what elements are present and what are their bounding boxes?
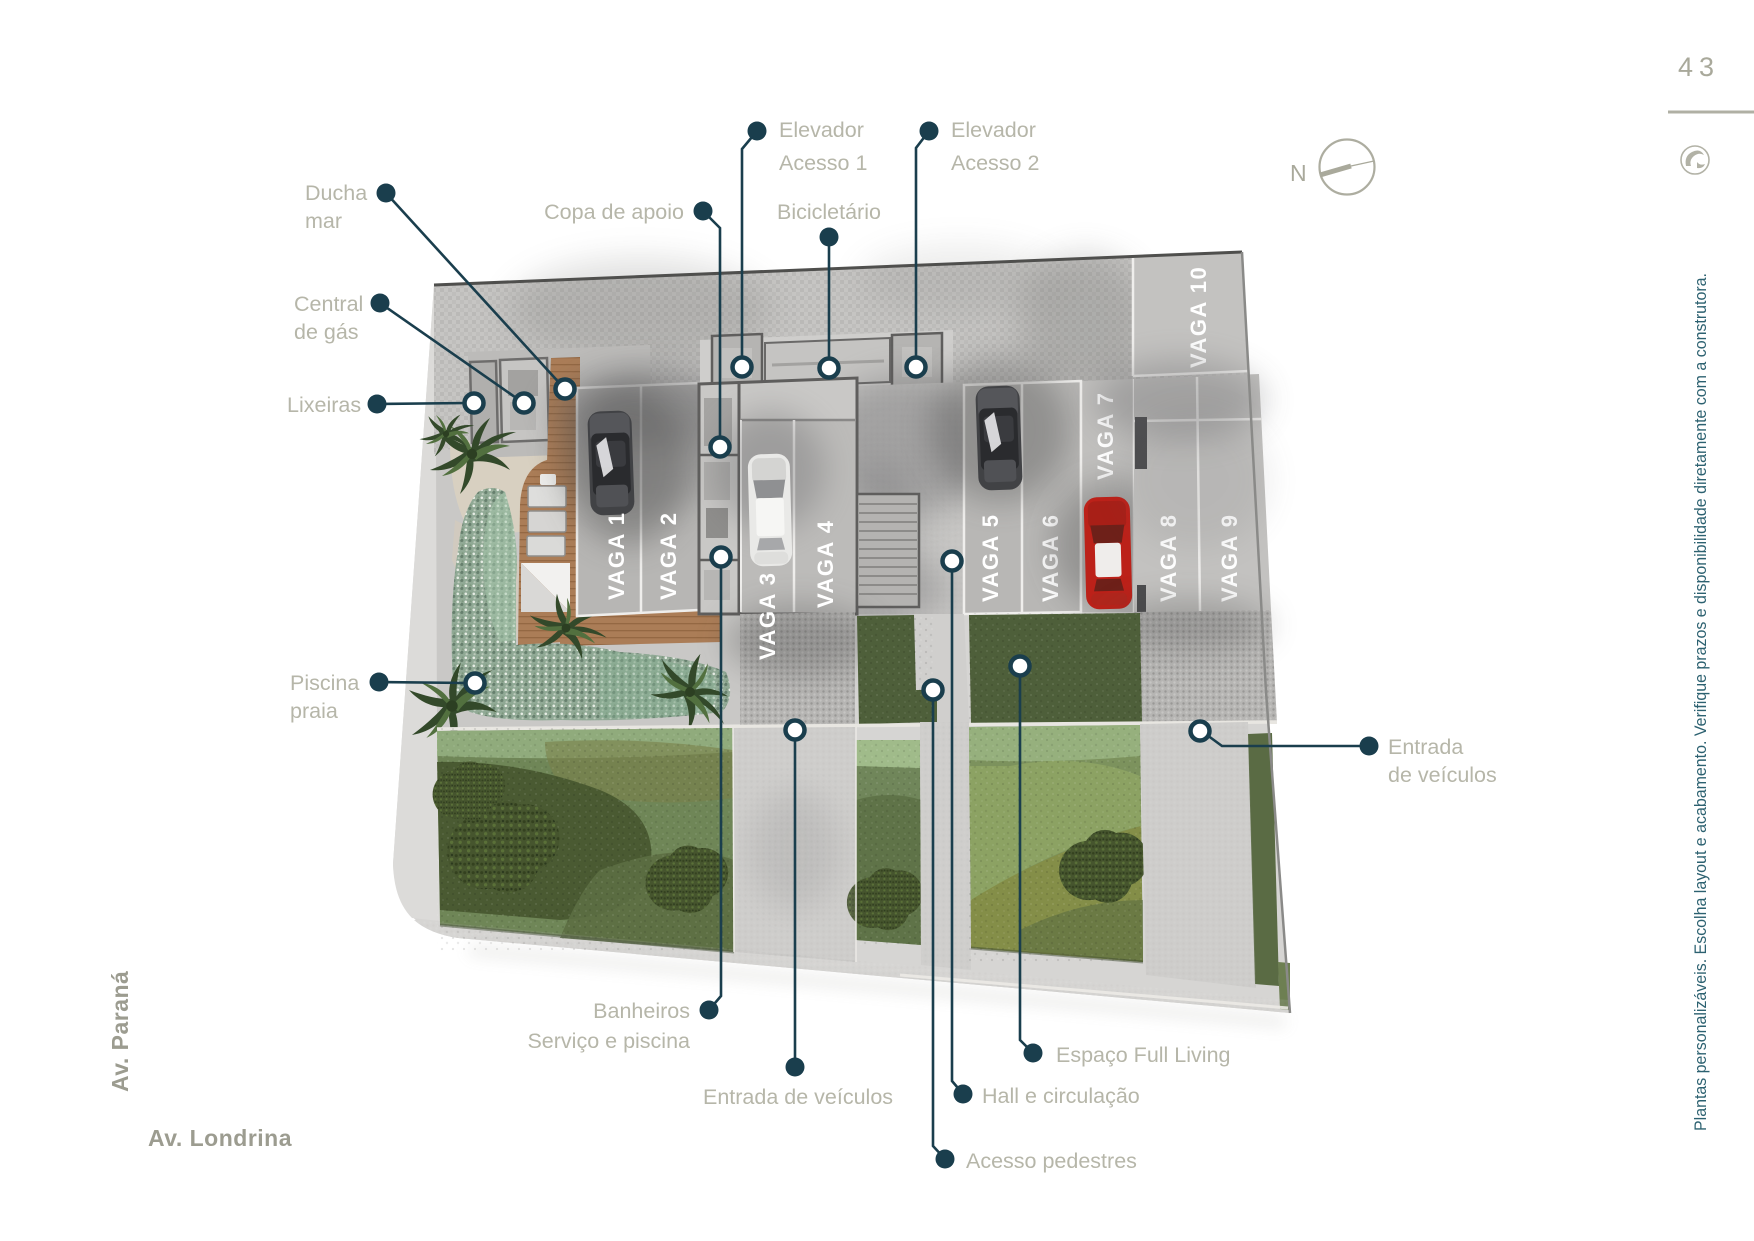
svg-text:Av. Paraná: Av. Paraná: [107, 971, 133, 1092]
svg-text:VAGA 2: VAGA 2: [656, 512, 681, 600]
svg-text:Elevador: Elevador: [951, 118, 1036, 142]
svg-text:Entrada: Entrada: [1388, 735, 1463, 759]
svg-text:Espaço Full Living: Espaço Full Living: [1056, 1043, 1230, 1067]
svg-text:Acesso 2: Acesso 2: [951, 151, 1039, 175]
svg-text:Lixeiras: Lixeiras: [287, 393, 361, 417]
svg-text:43: 43: [1678, 52, 1720, 82]
svg-text:VAGA 4: VAGA 4: [813, 520, 838, 608]
svg-text:VAGA 10: VAGA 10: [1186, 266, 1211, 368]
svg-text:Banheiros: Banheiros: [593, 999, 690, 1023]
svg-text:VAGA 5: VAGA 5: [978, 514, 1003, 602]
svg-text:Elevador: Elevador: [779, 118, 864, 142]
svg-text:Ducha: Ducha: [305, 181, 367, 205]
svg-text:de veículos: de veículos: [1388, 763, 1497, 787]
svg-text:Plantas personalizáveis. Escol: Plantas personalizáveis. Escolha layout …: [1691, 273, 1710, 1131]
svg-text:praia: praia: [290, 699, 338, 723]
svg-text:N: N: [1290, 160, 1307, 186]
svg-text:de gás: de gás: [294, 320, 359, 344]
svg-text:VAGA 3: VAGA 3: [755, 572, 780, 660]
svg-text:Av. Londrina: Av. Londrina: [148, 1125, 292, 1151]
svg-text:mar: mar: [305, 209, 342, 233]
svg-text:Entrada de veículos: Entrada de veículos: [703, 1085, 893, 1109]
svg-text:Acesso pedestres: Acesso pedestres: [966, 1149, 1137, 1173]
svg-text:Copa de apoio: Copa de apoio: [544, 200, 684, 224]
svg-text:Acesso 1: Acesso 1: [779, 151, 867, 175]
svg-text:VAGA 1: VAGA 1: [604, 512, 629, 600]
svg-text:Piscina: Piscina: [290, 671, 359, 695]
svg-text:Bicicletário: Bicicletário: [777, 200, 881, 224]
svg-text:Hall e circulação: Hall e circulação: [982, 1084, 1140, 1108]
svg-text:Central: Central: [294, 292, 363, 316]
svg-text:Serviço e piscina: Serviço e piscina: [527, 1029, 690, 1053]
